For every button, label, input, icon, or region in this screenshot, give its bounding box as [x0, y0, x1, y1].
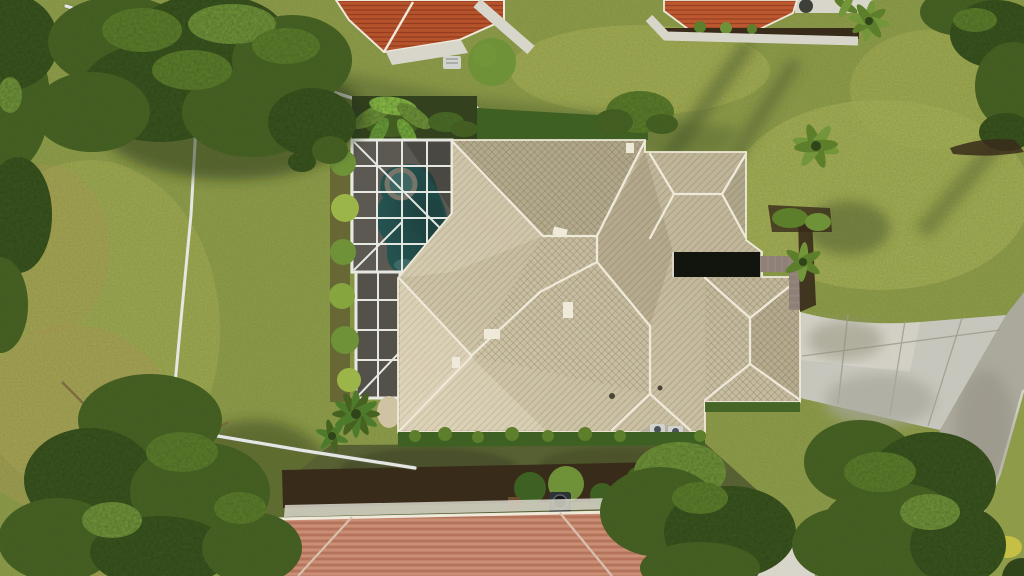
- aerial-photo-viewport: [0, 0, 1024, 576]
- main-house-roof: [398, 140, 800, 432]
- roof-speck: [609, 393, 615, 399]
- bush-bed: [330, 150, 350, 402]
- driveway-shadow: [825, 374, 935, 426]
- south-roof-tiles: [255, 511, 658, 576]
- pool-equipment: [443, 56, 461, 69]
- roof-speck: [658, 386, 663, 391]
- round-bush-highlight: [473, 43, 497, 67]
- bed-bush: [720, 22, 732, 34]
- garage-front-bed: [705, 402, 800, 412]
- bed-bush: [694, 21, 706, 33]
- bed-bush: [772, 208, 808, 228]
- bed-bush: [805, 213, 831, 231]
- bed-bush: [747, 24, 757, 34]
- entry-courtyard: [673, 252, 760, 277]
- aerial-scene: [0, 0, 1024, 576]
- neighbor-house-south: [255, 511, 658, 576]
- driveway-shadow: [807, 320, 883, 360]
